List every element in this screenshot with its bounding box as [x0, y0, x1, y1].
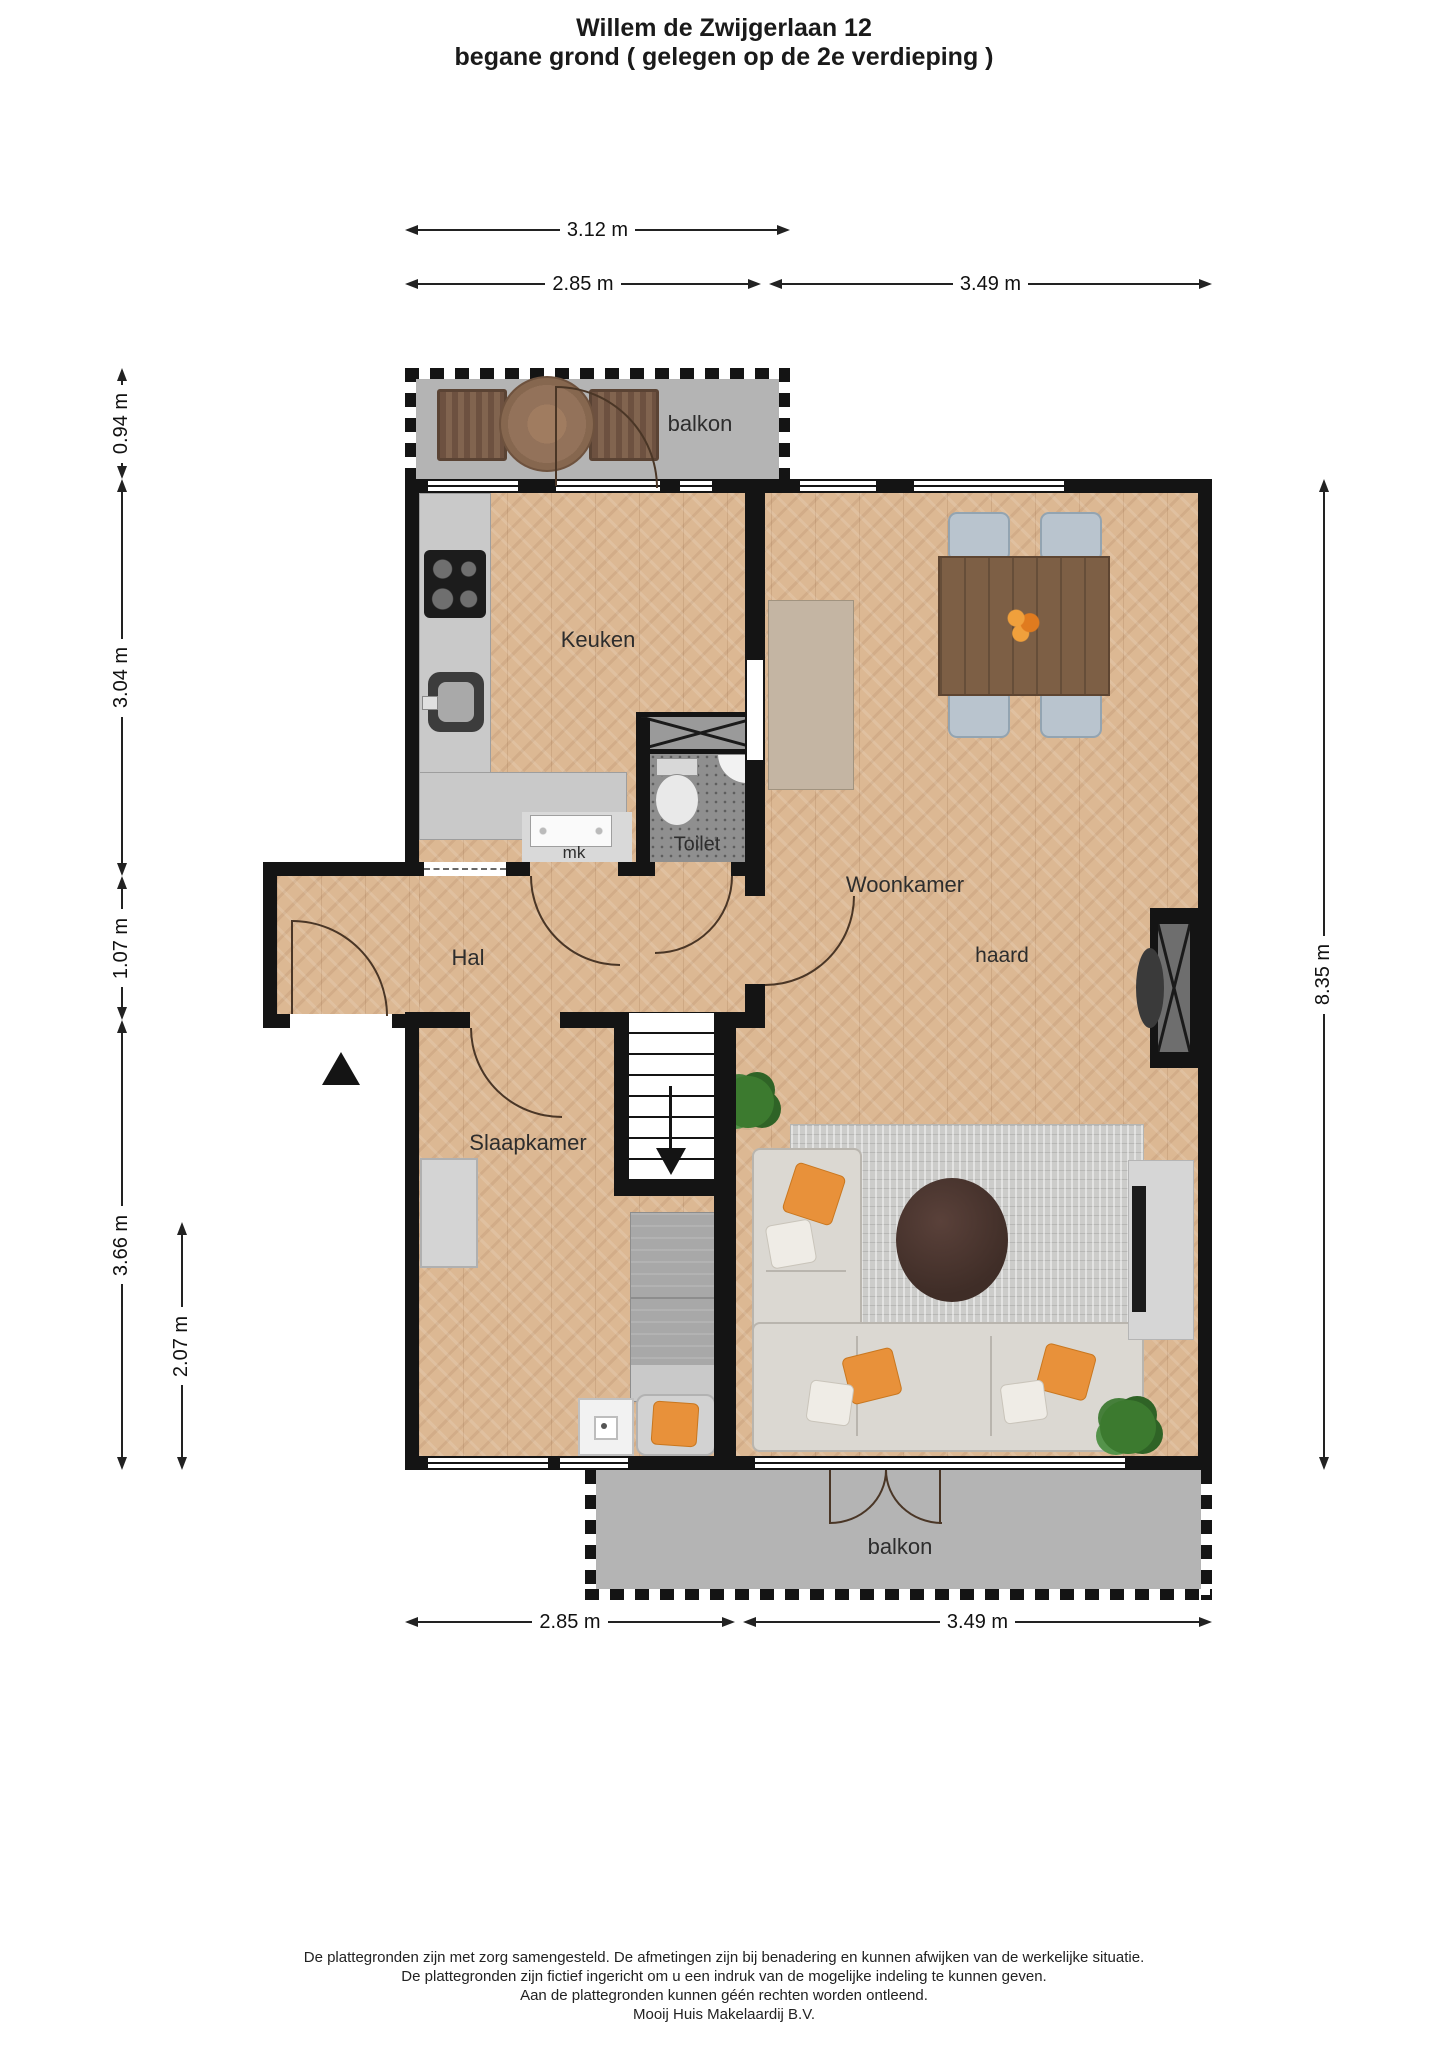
- room-label-fireplace: haard: [975, 944, 1029, 968]
- armchair-pillow: [651, 1400, 700, 1447]
- kitchen-sink: [428, 672, 484, 732]
- arrow-right-icon: [1199, 1617, 1212, 1627]
- dimension-top-total: 3.12 m: [405, 224, 790, 236]
- dining-table: [938, 556, 1110, 696]
- wall: [745, 876, 765, 896]
- dimension-bottom-left: 2.85 m: [405, 1616, 735, 1628]
- dimension-label: 3.49 m: [940, 1611, 1015, 1634]
- entrance-arrow-icon: [322, 1052, 360, 1085]
- door-leaf: [291, 920, 293, 1014]
- dimension-top-right: 3.49 m: [769, 278, 1212, 290]
- dimension-label: 2.85 m: [532, 1611, 607, 1634]
- window: [680, 479, 712, 493]
- window: [560, 1456, 628, 1470]
- wall: [405, 1014, 419, 1470]
- balcony-railing: [585, 1589, 1212, 1600]
- table-flowers: [1000, 602, 1046, 648]
- dimension-left-hall: 1.07 m: [116, 876, 128, 1020]
- dimension-label: 8.35 m: [1313, 944, 1336, 1005]
- balcony-railing: [1201, 1470, 1212, 1600]
- stairs-arrow-stem: [669, 1086, 672, 1150]
- arrow-right-icon: [777, 225, 790, 235]
- arrow-down-icon: [117, 1457, 127, 1470]
- arrow-down-icon: [117, 466, 127, 479]
- room-label-balcony-top: balkon: [668, 411, 733, 437]
- wall: [560, 1012, 614, 1028]
- wall: [636, 718, 650, 876]
- fireplace-front: [1136, 948, 1164, 1028]
- door-leaf: [829, 1470, 831, 1524]
- tv: [1132, 1186, 1146, 1312]
- wall: [548, 1456, 560, 1470]
- room-label-meter-closet: mk: [563, 843, 586, 863]
- sofa-pillow: [805, 1379, 854, 1427]
- arrow-up-icon: [117, 1020, 127, 1033]
- brokerage-name: Mooij Huis Makelaardij B.V.: [0, 2005, 1448, 2024]
- arrow-right-icon: [1199, 279, 1212, 289]
- coffee-table: [896, 1178, 1008, 1302]
- sofa-pillow: [999, 1379, 1048, 1425]
- disclaimer-line: De plattegronden zijn met zorg samengest…: [0, 1948, 1448, 1967]
- room-label-living-room: Woonkamer: [846, 872, 964, 898]
- dining-chair: [1040, 512, 1102, 562]
- bed: [630, 1212, 716, 1402]
- title-floor: begane grond ( gelegen op de 2e verdiepi…: [0, 43, 1448, 72]
- wall: [1198, 479, 1212, 1470]
- wall: [745, 760, 765, 876]
- wall: [745, 984, 765, 1012]
- dimension-left-balcony: 0.94 m: [116, 368, 128, 479]
- open-passage-line: [424, 868, 506, 870]
- room-label-balcony-bottom: balkon: [868, 1534, 933, 1560]
- arrow-left-icon: [405, 1617, 418, 1627]
- arrow-up-icon: [1319, 479, 1329, 492]
- wardrobe: [420, 1158, 478, 1268]
- wall: [518, 479, 556, 493]
- plant: [1100, 1400, 1156, 1454]
- arrow-up-icon: [117, 876, 127, 889]
- side-table: [578, 1398, 634, 1456]
- wall: [1064, 479, 1212, 493]
- arrow-left-icon: [405, 225, 418, 235]
- door-leaf: [939, 1470, 941, 1524]
- wall: [714, 1012, 736, 1456]
- balcony-railing: [779, 368, 790, 479]
- cooktop: [424, 550, 486, 618]
- window-balcony-doors: [755, 1456, 1125, 1470]
- pass-through: [745, 660, 765, 760]
- dining-chair: [948, 512, 1010, 562]
- dimension-bottom-right: 3.49 m: [743, 1616, 1212, 1628]
- wall: [405, 1456, 428, 1470]
- arrow-right-icon: [722, 1617, 735, 1627]
- dimension-left-bedroom: 3.66 m: [116, 1020, 128, 1470]
- wall: [405, 479, 419, 876]
- arrow-up-icon: [117, 479, 127, 492]
- dimension-left-kitchen: 3.04 m: [116, 479, 128, 876]
- balcony-railing: [585, 1470, 596, 1600]
- wall: [614, 1012, 628, 1196]
- wall: [263, 862, 405, 876]
- dimension-left-bedroom-inner: 2.07 m: [176, 1222, 188, 1470]
- dimension-label: 3.49 m: [953, 273, 1028, 296]
- wall: [1125, 1456, 1212, 1470]
- arrow-up-icon: [117, 368, 127, 381]
- room-label-kitchen: Keuken: [561, 627, 636, 653]
- arrow-right-icon: [748, 279, 761, 289]
- disclaimer: De plattegronden zijn met zorg samengest…: [0, 1948, 1448, 2024]
- arrow-left-icon: [743, 1617, 756, 1627]
- room-label-hall: Hal: [451, 945, 484, 971]
- wall: [660, 479, 680, 493]
- wall: [405, 1012, 470, 1028]
- wall: [876, 479, 914, 493]
- dimension-label: 3.66 m: [111, 1214, 134, 1275]
- wall: [506, 862, 530, 876]
- arrow-down-icon: [177, 1457, 187, 1470]
- stairs-down-arrow-icon: [656, 1148, 686, 1175]
- balcony-chair: [437, 389, 507, 461]
- shaft-cross-icon: [641, 717, 760, 749]
- window: [914, 479, 1064, 493]
- sideboard: [768, 600, 854, 790]
- title-address: Willem de Zwijgerlaan 12: [0, 14, 1448, 43]
- arrow-up-icon: [177, 1222, 187, 1235]
- toilet-bowl: [655, 774, 699, 826]
- dimension-label: 3.12 m: [560, 219, 635, 242]
- dimension-right-total: 8.35 m: [1318, 479, 1330, 1470]
- dimension-top-left: 2.85 m: [405, 278, 761, 290]
- front-door-opening: [290, 1014, 392, 1028]
- sofa-seam: [990, 1336, 992, 1436]
- arrow-down-icon: [1319, 1457, 1329, 1470]
- wall: [263, 862, 277, 1028]
- room-label-bedroom: Slaapkamer: [469, 1130, 586, 1156]
- dimension-label: 0.94 m: [111, 393, 134, 454]
- window: [800, 479, 876, 493]
- arrow-left-icon: [769, 279, 782, 289]
- arrow-left-icon: [405, 279, 418, 289]
- dimension-label: 2.07 m: [171, 1315, 194, 1376]
- balcony-railing: [405, 368, 416, 479]
- door-leaf: [555, 386, 557, 486]
- room-label-toilet: Toilet: [674, 834, 721, 857]
- dimension-label: 1.07 m: [111, 917, 134, 978]
- balcony-railing: [405, 368, 790, 379]
- wall: [745, 479, 765, 660]
- disclaimer-line: Aan de plattegronden kunnen géén rechten…: [0, 1986, 1448, 2005]
- dimension-label: 3.04 m: [111, 647, 134, 708]
- wall: [263, 1014, 290, 1028]
- sofa-seam: [766, 1270, 846, 1272]
- arrow-down-icon: [117, 1007, 127, 1020]
- wall: [405, 862, 424, 876]
- floor-plan: Willem de Zwijgerlaan 12 begane grond ( …: [0, 0, 1448, 2048]
- wall: [628, 1456, 755, 1470]
- arrow-down-icon: [117, 863, 127, 876]
- window: [428, 479, 518, 493]
- window: [428, 1456, 548, 1470]
- dimension-label: 2.85 m: [545, 273, 620, 296]
- disclaimer-line: De plattegronden zijn fictief ingericht …: [0, 1967, 1448, 1986]
- sofa-pillow: [765, 1218, 818, 1269]
- page-title: Willem de Zwijgerlaan 12 begane grond ( …: [0, 14, 1448, 72]
